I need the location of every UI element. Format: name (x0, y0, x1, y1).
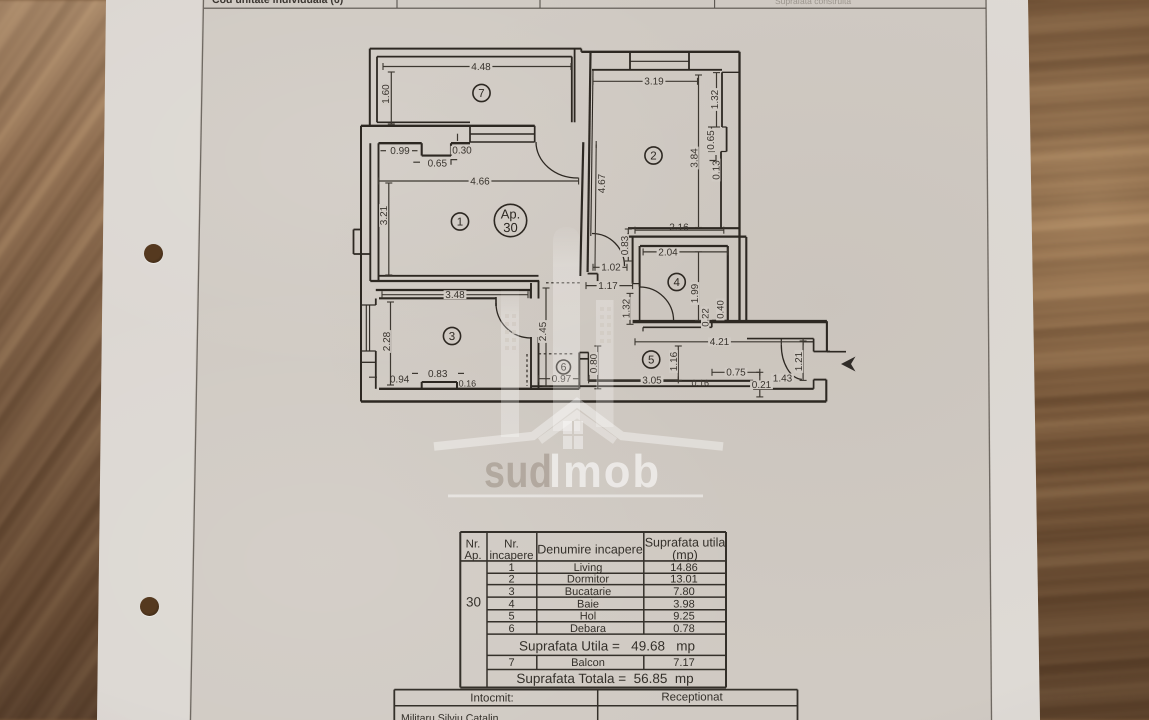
svg-text:lmob: lmob (549, 445, 661, 497)
svg-text:sud: sud (484, 445, 552, 497)
